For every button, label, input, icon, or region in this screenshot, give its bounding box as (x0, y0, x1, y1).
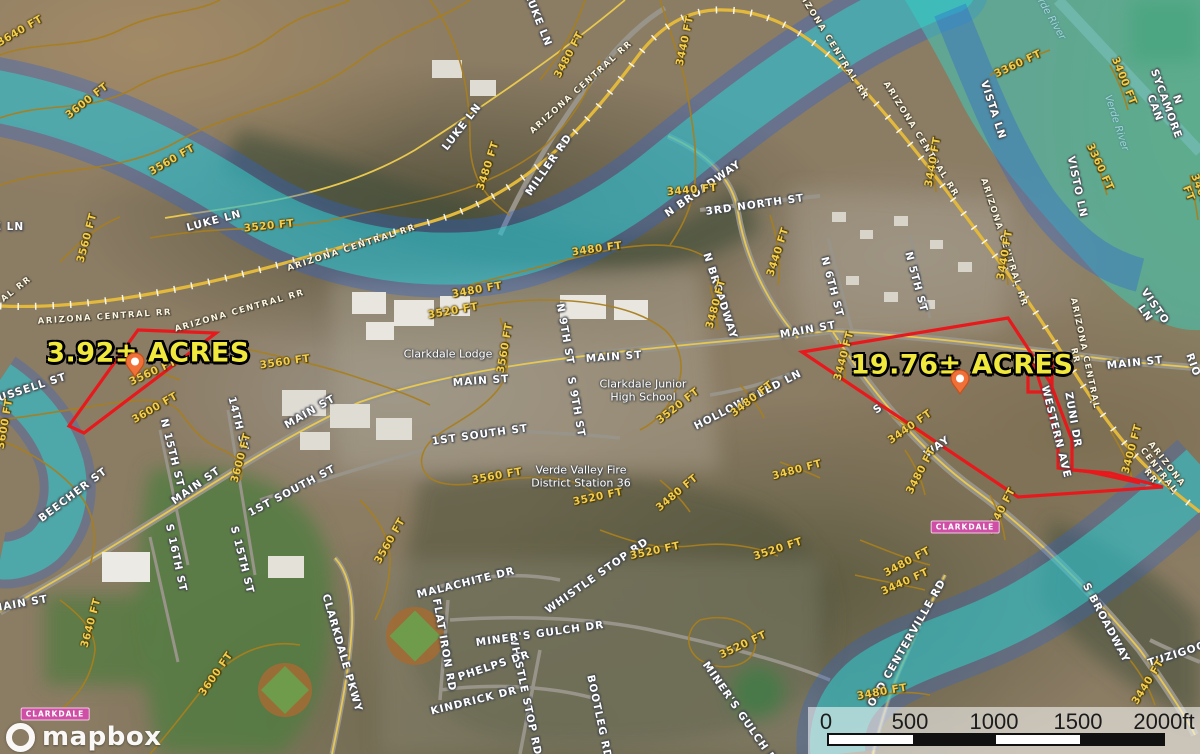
place-badge: CLARKDALE (21, 708, 90, 721)
scale-tick: 0 (820, 709, 832, 735)
mapbox-logo-icon (6, 723, 35, 752)
satellite-map-canvas[interactable]: LUKE LNLUKE LNLUKE LNMILLER RDN BROADWAY… (0, 0, 1200, 754)
property-pin-icon[interactable] (950, 369, 970, 395)
scale-tick: 500 (892, 709, 929, 735)
parcel-acreage-label: 3.92± ACRES (46, 338, 250, 369)
place-badge: CLARKDALE (931, 521, 1000, 534)
scale-tick: 1000 (970, 709, 1019, 735)
property-pin-icon[interactable] (125, 352, 145, 378)
scale-tick: 1500 (1054, 709, 1103, 735)
scale-bar-segments (827, 733, 1165, 746)
mapbox-logo[interactable]: mapbox (6, 722, 162, 752)
scale-tick: 2000ft (1133, 709, 1194, 735)
mapbox-logo-wordmark: mapbox (42, 722, 162, 752)
scale-bar: 0 500 1000 1500 2000ft (808, 707, 1200, 754)
